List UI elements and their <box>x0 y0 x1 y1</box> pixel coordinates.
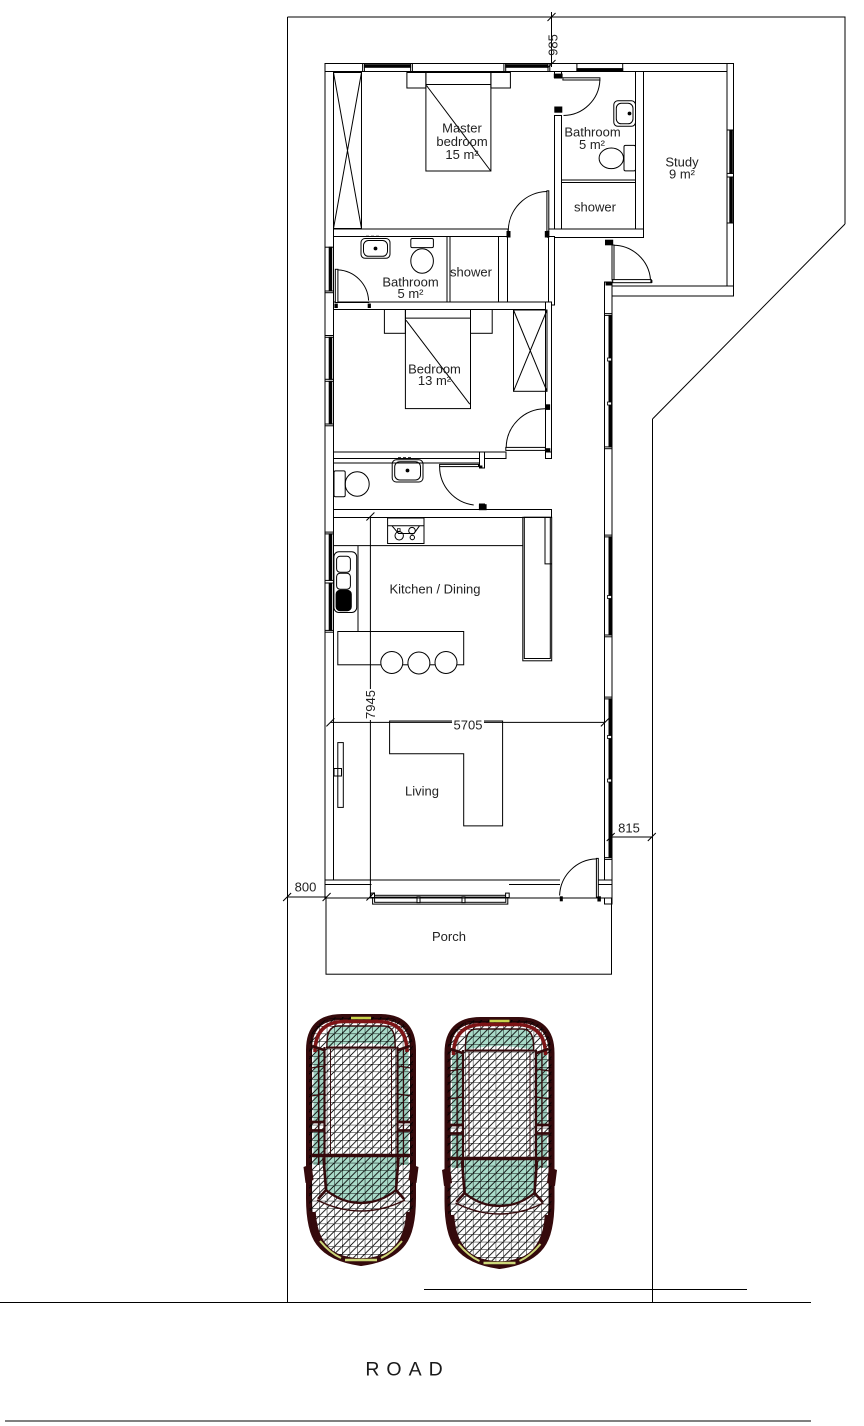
svg-text:5705: 5705 <box>454 718 483 733</box>
svg-text:shower: shower <box>574 200 617 215</box>
svg-text:Kitchen / Dining: Kitchen / Dining <box>389 582 480 597</box>
svg-text:13 m²: 13 m² <box>418 373 452 388</box>
svg-text:800: 800 <box>295 880 317 895</box>
svg-text:7945: 7945 <box>363 690 378 719</box>
svg-text:9 m²: 9 m² <box>669 167 696 182</box>
svg-text:5 m²: 5 m² <box>579 137 606 152</box>
svg-text:5 m²: 5 m² <box>398 286 425 301</box>
svg-text:Porch: Porch <box>432 929 466 944</box>
svg-text:Living: Living <box>405 784 439 799</box>
svg-text:shower: shower <box>450 265 493 280</box>
svg-text:815: 815 <box>618 821 640 836</box>
svg-text:15 m²: 15 m² <box>445 147 479 162</box>
svg-text:985: 985 <box>546 34 561 56</box>
svg-text:ROAD: ROAD <box>365 1359 449 1381</box>
